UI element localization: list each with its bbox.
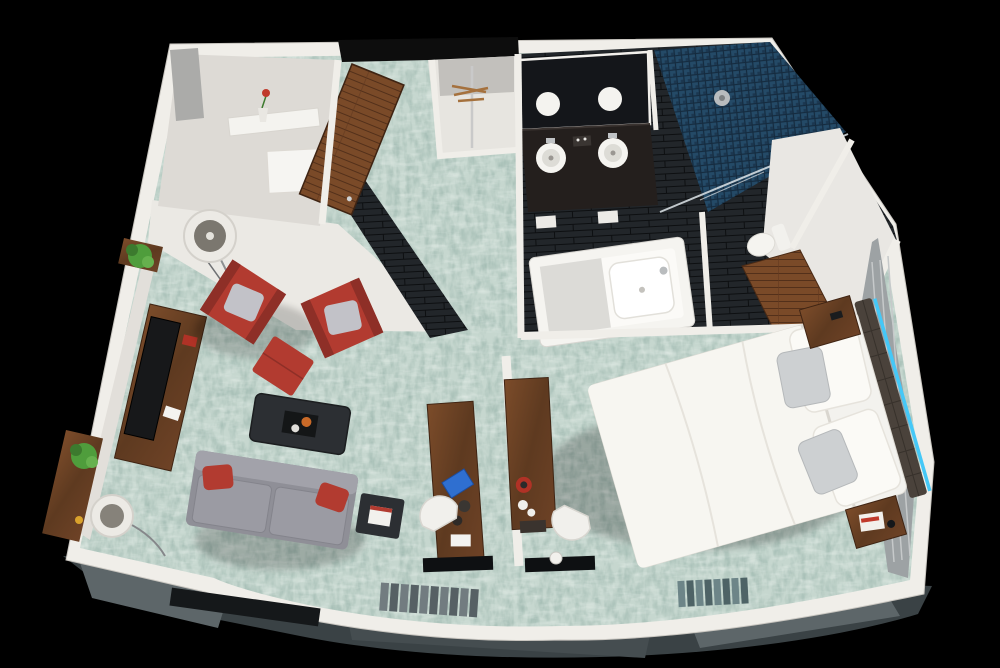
sink-reflection <box>598 87 622 111</box>
plant-leaf <box>86 456 98 468</box>
gray-accent-pillow <box>776 345 832 409</box>
faucet <box>608 133 617 138</box>
vanity-mirror <box>520 52 650 130</box>
bathroom-left-wall <box>518 54 521 338</box>
arc-lamp-inner <box>100 504 124 528</box>
amenity <box>577 139 580 142</box>
notepad <box>451 534 471 546</box>
sink-drain <box>549 156 554 161</box>
frosted-glass-panel <box>170 48 204 121</box>
amenity-tray <box>573 135 592 146</box>
rose-flower <box>262 89 270 97</box>
floor-mat <box>423 556 493 572</box>
sink-reflection <box>536 92 560 116</box>
plant-leaf <box>70 444 82 456</box>
red-throw-pillow <box>202 464 234 491</box>
entry-closet <box>428 56 520 156</box>
faucet <box>546 138 555 143</box>
plant-leaf <box>126 244 138 256</box>
towel <box>598 210 619 223</box>
side-table <box>355 493 405 539</box>
amenity <box>584 138 587 141</box>
kitchenette-nook <box>158 48 336 226</box>
render-viewport <box>0 0 1000 668</box>
tub-deck-textured <box>540 258 611 336</box>
lamp-bulb <box>206 232 214 240</box>
towel <box>536 215 557 228</box>
plant-leaf <box>142 256 154 268</box>
floorplan-render <box>0 0 1000 668</box>
supply-tray <box>520 520 547 533</box>
shower-head-center <box>719 95 725 101</box>
desk-top <box>504 377 556 529</box>
bedroom-desk <box>504 377 556 533</box>
sink-drain <box>611 151 616 156</box>
decor-item <box>75 516 83 524</box>
kettle <box>550 552 562 564</box>
